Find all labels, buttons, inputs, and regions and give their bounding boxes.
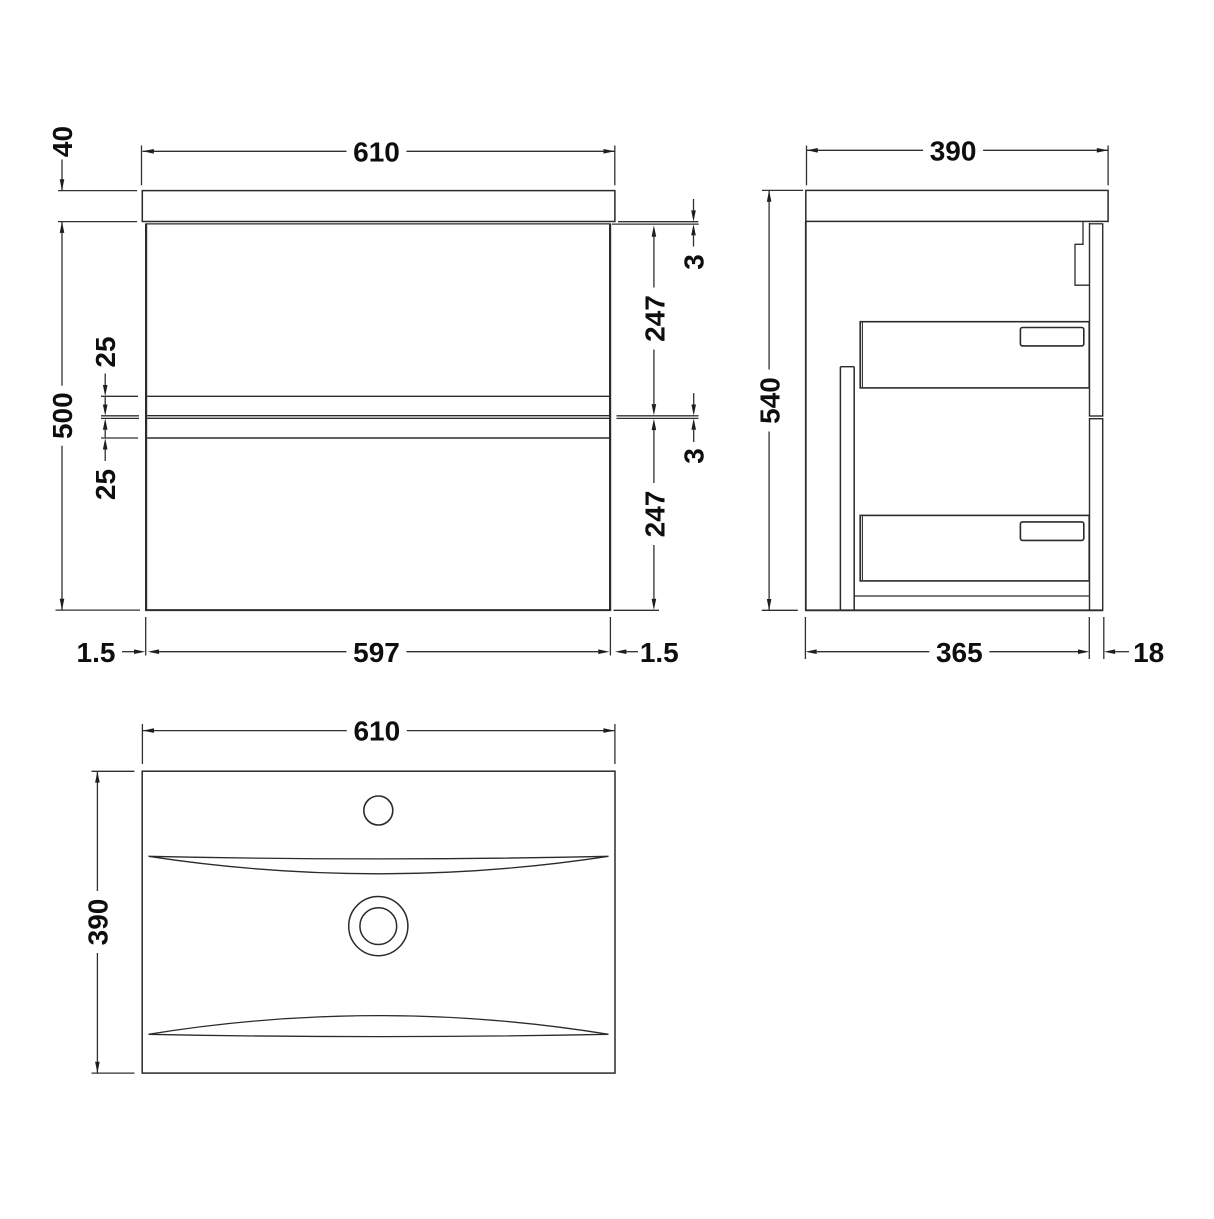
svg-text:25: 25 [90,336,121,367]
svg-text:610: 610 [353,716,400,747]
svg-text:365: 365 [936,637,983,668]
svg-text:390: 390 [82,899,113,946]
svg-text:610: 610 [353,136,400,167]
svg-text:247: 247 [639,295,670,342]
svg-text:1.5: 1.5 [77,637,116,668]
svg-text:390: 390 [930,135,977,166]
svg-text:247: 247 [639,491,670,538]
svg-text:40: 40 [47,126,78,157]
svg-text:597: 597 [353,637,400,668]
svg-text:500: 500 [47,392,78,439]
svg-text:25: 25 [90,469,121,500]
svg-text:540: 540 [755,377,786,424]
svg-text:1.5: 1.5 [640,637,679,668]
svg-text:18: 18 [1133,637,1164,668]
svg-text:3: 3 [678,254,709,270]
svg-text:3: 3 [679,448,710,464]
